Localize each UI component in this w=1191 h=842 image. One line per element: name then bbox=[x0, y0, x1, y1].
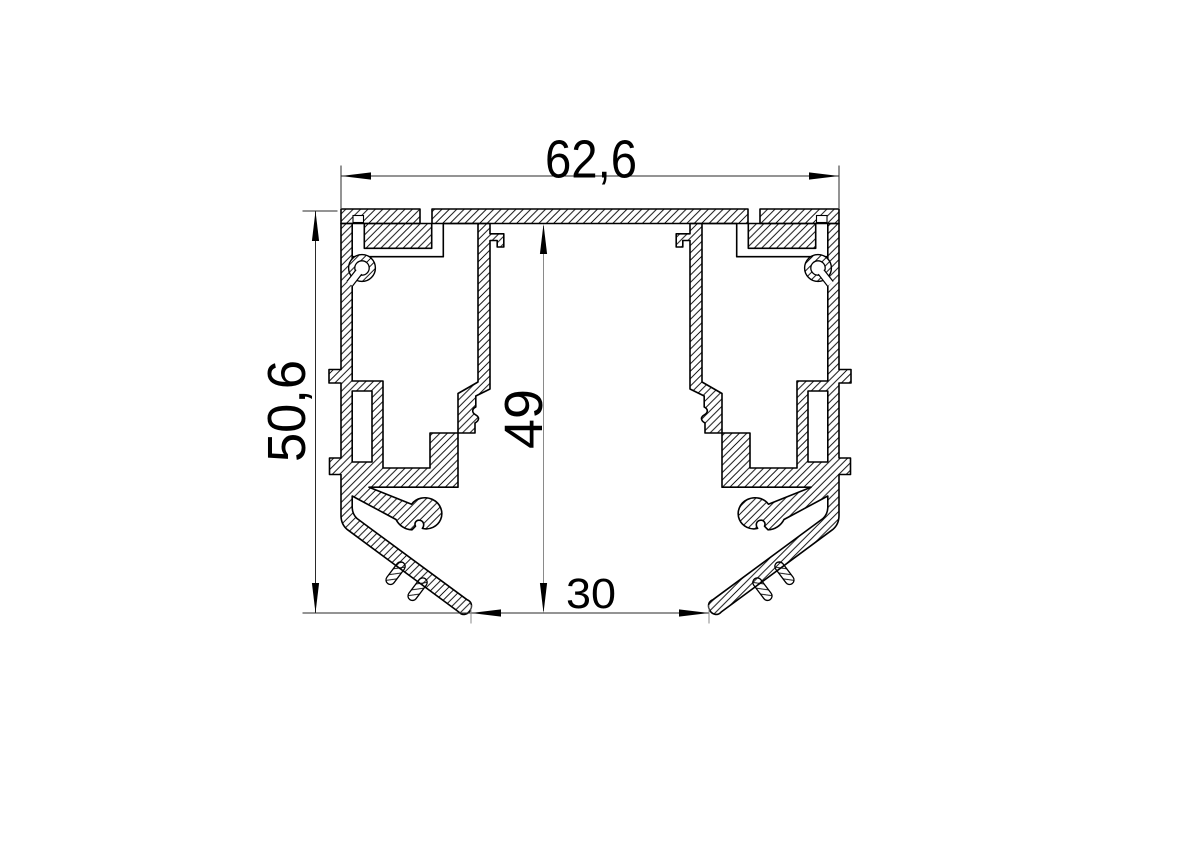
screw-boss bbox=[347, 255, 376, 286]
dim-top-width-label: 62,6 bbox=[545, 130, 637, 190]
dimension-top-width: 62,6 bbox=[341, 130, 839, 209]
drawing-canvas: 62,6 50,6 49 30 bbox=[0, 0, 1191, 842]
technical-drawing: 62,6 50,6 49 30 bbox=[0, 0, 1191, 842]
dim-inner-height-label: 49 bbox=[494, 389, 554, 449]
corner-notch-right bbox=[817, 216, 828, 223]
dimension-left-height: 50,6 bbox=[257, 211, 338, 613]
dim-bottom-width-label: 30 bbox=[566, 570, 616, 618]
profile-right-half bbox=[676, 224, 851, 615]
dimension-bottom-width: 30 bbox=[303, 570, 710, 624]
profile-left-half bbox=[329, 224, 504, 615]
dimension-inner-height: 49 bbox=[494, 224, 554, 613]
corner-notch-left bbox=[353, 216, 364, 223]
top-plate bbox=[341, 209, 839, 224]
dim-left-height-label: 50,6 bbox=[257, 360, 317, 462]
